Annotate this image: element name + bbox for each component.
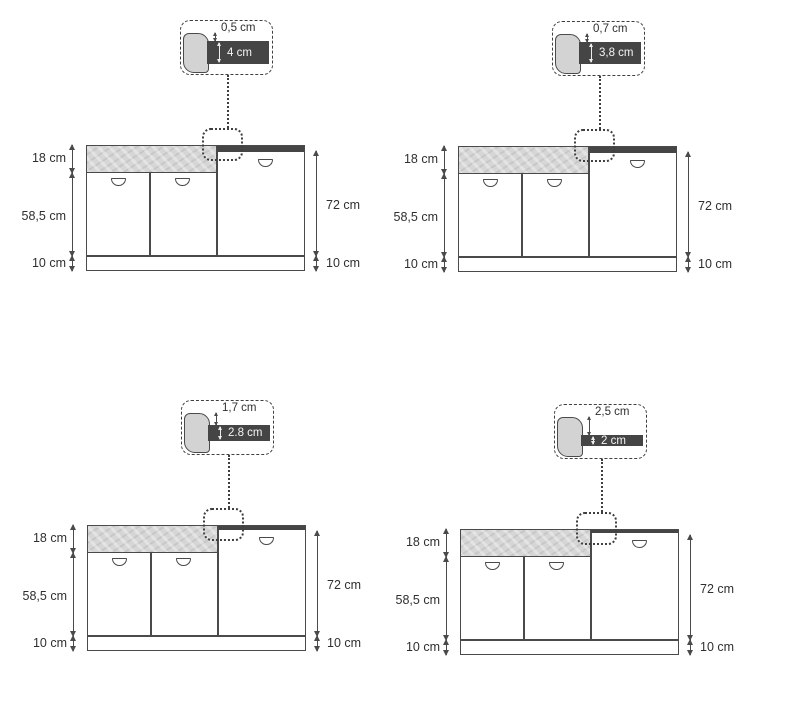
dim-arrow-doors [444, 174, 445, 257]
door-divider [588, 153, 590, 256]
drawer-front-band [88, 526, 218, 553]
countertop-detail-callout: 2.8 cm 1,7 cm [181, 400, 274, 455]
plinth-height-label-left: 10 cm [394, 640, 440, 655]
door-handle-icon [630, 160, 645, 168]
dim-arrow-right-height [688, 152, 689, 257]
plinth-line [87, 255, 304, 257]
zoom-region-indicator [202, 128, 243, 161]
plinth-line [461, 639, 678, 641]
thickness-arrow-icon [593, 437, 594, 444]
gap-arrow-icon [589, 417, 590, 435]
dim-arrow-right-height [690, 535, 691, 640]
plinth-height-label-right: 10 cm [700, 640, 734, 655]
cabinet-height-label: 72 cm [698, 199, 732, 214]
cabinet-height-label: 72 cm [327, 578, 361, 593]
worktop-edge-profile [557, 417, 583, 457]
door-divider [216, 152, 218, 255]
dim-arrow-plinth-left [72, 256, 73, 271]
dim-arrow-plinth-left [444, 257, 445, 272]
door-handle-icon [176, 558, 191, 566]
cabinet-height-label: 72 cm [326, 198, 360, 213]
countertop-thickness-bar: 4 cm [207, 41, 269, 64]
door-handle-icon [485, 562, 500, 570]
band-height-label: 18 cm [20, 151, 66, 166]
plinth-height-label-right: 10 cm [326, 256, 360, 271]
dim-arrow-plinth-left [446, 640, 447, 655]
thickness-arrow-icon [220, 427, 221, 439]
dotted-connector-line [601, 459, 603, 512]
gap-arrow-icon [587, 34, 588, 42]
door-handle-icon [175, 178, 190, 186]
door-handle-icon [112, 558, 127, 566]
dim-arrow-doors [72, 173, 73, 256]
zoom-region-indicator [576, 512, 617, 545]
thickness-value-label: 3,8 cm [599, 42, 634, 64]
diagram-canvas: 4 cm 0,5 cm 18 cm 58,5 cm 10 cm 72 cm [0, 0, 800, 706]
door-handle-icon [632, 540, 647, 548]
cabinet-height-label: 72 cm [700, 582, 734, 597]
overhang-gap-label: 1,7 cm [222, 402, 257, 414]
door-divider [149, 173, 151, 255]
door-divider [217, 530, 219, 635]
dim-arrow-plinth-right [316, 256, 317, 271]
dim-arrow-band [73, 525, 74, 553]
dim-arrow-plinth-right [688, 257, 689, 272]
worktop-edge-profile [555, 34, 581, 74]
band-height-label: 18 cm [21, 531, 67, 546]
countertop-detail-callout: 4 cm 0,5 cm [180, 20, 273, 75]
drawer-front-band [461, 530, 591, 557]
countertop-thickness-bar: 2 cm [581, 435, 643, 446]
doors-height-label: 58,5 cm [21, 589, 67, 604]
zoom-region-indicator [574, 129, 615, 162]
plinth-height-label-right: 10 cm [698, 257, 732, 272]
dim-arrow-doors [73, 553, 74, 636]
band-height-label: 18 cm [394, 535, 440, 550]
cabinet-diagram-panel: 4 cm 0,5 cm 18 cm 58,5 cm 10 cm 72 cm [20, 20, 390, 282]
thickness-value-label: 2 cm [601, 435, 626, 446]
kitchen-cabinet-drawing [86, 145, 305, 271]
dim-arrow-right-height [317, 531, 318, 636]
gap-arrow-icon [215, 33, 216, 41]
countertop-thickness-bar: 3,8 cm [579, 42, 641, 64]
plinth-height-label-left: 10 cm [21, 636, 67, 651]
dotted-connector-line [227, 75, 229, 128]
countertop-detail-callout: 3,8 cm 0,7 cm [552, 21, 645, 76]
door-handle-icon [549, 562, 564, 570]
dim-arrow-right-height [316, 151, 317, 256]
countertop-thickness-bar: 2.8 cm [208, 425, 270, 441]
dim-arrow-band [446, 529, 447, 557]
doors-height-label: 58,5 cm [394, 593, 440, 608]
plinth-line [88, 635, 305, 637]
plinth-height-label-right: 10 cm [327, 636, 361, 651]
kitchen-cabinet-drawing [87, 525, 306, 651]
cabinet-diagram-panel: 3,8 cm 0,7 cm 18 cm 58,5 cm 10 cm 72 cm [392, 21, 762, 283]
thickness-value-label: 4 cm [227, 41, 252, 64]
overhang-gap-label: 0,5 cm [221, 22, 256, 34]
overhang-gap-label: 0,7 cm [593, 23, 628, 35]
dim-arrow-plinth-right [690, 640, 691, 655]
doors-height-label: 58,5 cm [392, 210, 438, 225]
door-handle-icon [547, 179, 562, 187]
dim-arrow-band [72, 145, 73, 173]
worktop-edge-profile [183, 33, 209, 73]
zoom-region-indicator [203, 508, 244, 541]
cabinet-diagram-panel: 2 cm 2,5 cm 18 cm 58,5 cm 10 cm 72 cm [394, 404, 764, 666]
overhang-gap-label: 2,5 cm [595, 406, 630, 418]
thickness-arrow-icon [219, 43, 220, 62]
door-handle-icon [483, 179, 498, 187]
thickness-value-label: 2.8 cm [228, 425, 263, 441]
door-divider [521, 174, 523, 256]
plinth-height-label-left: 10 cm [20, 256, 66, 271]
door-divider [590, 533, 592, 639]
kitchen-cabinet-drawing [460, 529, 679, 655]
gap-arrow-icon [216, 413, 217, 425]
plinth-line [459, 256, 676, 258]
dim-arrow-doors [446, 557, 447, 640]
dotted-connector-line [599, 76, 601, 129]
dotted-connector-line [228, 455, 230, 508]
band-height-label: 18 cm [392, 152, 438, 167]
drawer-front-band [87, 146, 217, 173]
thickness-arrow-icon [591, 44, 592, 62]
plinth-height-label-left: 10 cm [392, 257, 438, 272]
door-handle-icon [258, 159, 273, 167]
cabinet-diagram-panel: 2.8 cm 1,7 cm 18 cm 58,5 cm 10 cm 72 cm [21, 400, 391, 662]
door-handle-icon [111, 178, 126, 186]
kitchen-cabinet-drawing [458, 146, 677, 272]
door-handle-icon [259, 537, 274, 545]
door-divider [523, 557, 525, 639]
drawer-front-band [459, 147, 589, 174]
worktop-edge-profile [184, 413, 210, 453]
dim-arrow-band [444, 146, 445, 174]
dim-arrow-plinth-left [73, 636, 74, 651]
countertop-detail-callout: 2 cm 2,5 cm [554, 404, 647, 459]
dim-arrow-plinth-right [317, 636, 318, 651]
door-divider [150, 553, 152, 635]
doors-height-label: 58,5 cm [20, 209, 66, 224]
